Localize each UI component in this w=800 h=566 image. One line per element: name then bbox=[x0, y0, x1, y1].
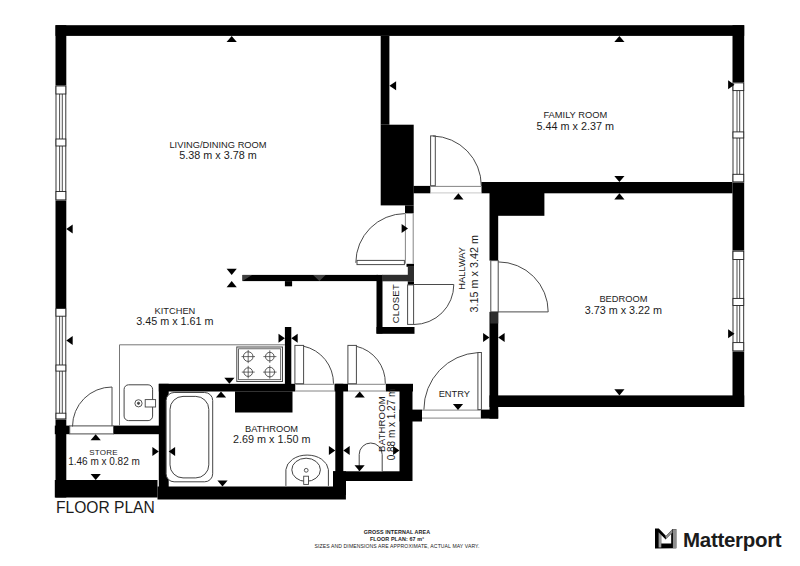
svg-text:FAMILY ROOM: FAMILY ROOM bbox=[543, 110, 607, 120]
svg-text:3.45 m x 1.61 m: 3.45 m x 1.61 m bbox=[136, 315, 213, 327]
svg-text:GROSS INTERNAL AREA: GROSS INTERNAL AREA bbox=[364, 529, 431, 535]
svg-text:3.15 m x 3.42 m: 3.15 m x 3.42 m bbox=[468, 235, 480, 312]
svg-text:FLOOR PLAN: 67 m²: FLOOR PLAN: 67 m² bbox=[370, 536, 424, 542]
svg-text:3.73 m x 3.22 m: 3.73 m x 3.22 m bbox=[585, 304, 662, 316]
svg-text:5.38 m x 3.78 m: 5.38 m x 3.78 m bbox=[179, 149, 256, 161]
svg-text:Matterport: Matterport bbox=[683, 528, 782, 551]
svg-text:SIZES AND DIMENSIONS ARE APPRO: SIZES AND DIMENSIONS ARE APPROXIMATE, AC… bbox=[315, 543, 480, 549]
svg-text:HALLWAY: HALLWAY bbox=[457, 247, 467, 290]
svg-text:ENTRY: ENTRY bbox=[439, 389, 470, 399]
svg-text:1.46 m x 0.82 m: 1.46 m x 0.82 m bbox=[68, 456, 140, 467]
svg-text:2.69 m x 1.50 m: 2.69 m x 1.50 m bbox=[233, 433, 310, 445]
svg-text:LIVING/DINING ROOM: LIVING/DINING ROOM bbox=[169, 140, 266, 150]
svg-text:5.44 m x 2.37 m: 5.44 m x 2.37 m bbox=[537, 120, 614, 132]
svg-text:0.88 m x 1.27 m: 0.88 m x 1.27 m bbox=[386, 389, 397, 461]
svg-text:FLOOR PLAN: FLOOR PLAN bbox=[56, 499, 155, 516]
svg-text:CLOSET: CLOSET bbox=[390, 284, 401, 323]
svg-text:BEDROOM: BEDROOM bbox=[599, 294, 647, 304]
